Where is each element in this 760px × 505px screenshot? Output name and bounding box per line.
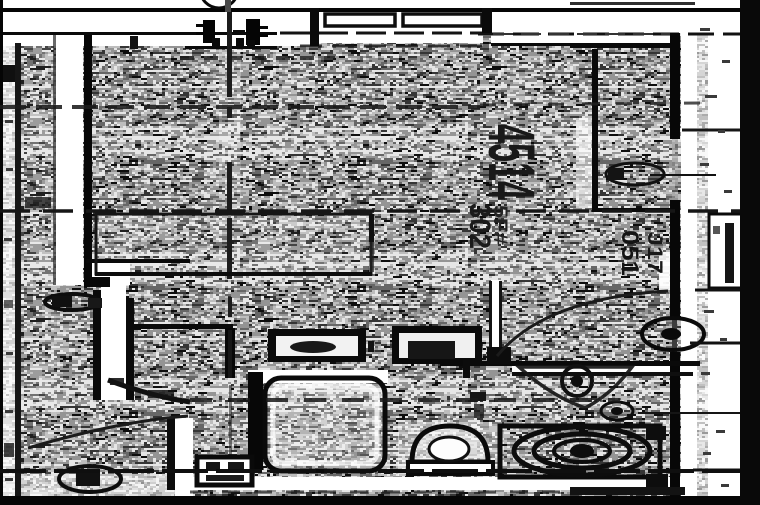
svg-text:4514: 4514 [475, 124, 549, 200]
svg-text:051: 051 [616, 230, 643, 276]
svg-text:5F#: 5F# [489, 205, 510, 246]
svg-text:J17: J17 [643, 232, 666, 274]
